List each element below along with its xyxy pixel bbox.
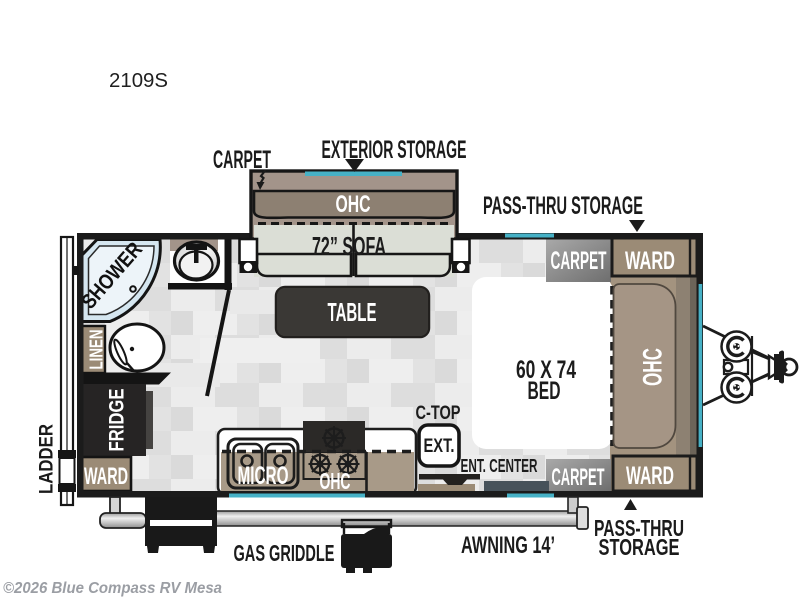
- svg-text:WARD: WARD: [626, 462, 674, 490]
- svg-text:EXTERIOR STORAGE: EXTERIOR STORAGE: [322, 136, 467, 164]
- svg-text:CARPET: CARPET: [213, 146, 271, 174]
- svg-text:2109S: 2109S: [109, 70, 168, 92]
- svg-text:CARPET: CARPET: [551, 247, 607, 275]
- svg-text:STORAGE: STORAGE: [599, 534, 680, 560]
- svg-text:ENT. CENTER: ENT. CENTER: [461, 456, 538, 476]
- svg-text:72” SOFA: 72” SOFA: [312, 231, 386, 261]
- svg-text:OHC: OHC: [336, 191, 371, 218]
- svg-text:©2026 Blue Compass RV Mesa: ©2026 Blue Compass RV Mesa: [3, 580, 222, 597]
- svg-text:MICRO: MICRO: [238, 462, 289, 490]
- svg-text:AWNING 14’: AWNING 14’: [461, 532, 555, 559]
- svg-text:BED: BED: [528, 377, 561, 405]
- svg-text:OHC: OHC: [638, 348, 668, 386]
- svg-text:FRIDGE: FRIDGE: [106, 389, 129, 452]
- svg-text:TABLE: TABLE: [328, 297, 377, 327]
- svg-text:WARD: WARD: [84, 463, 128, 490]
- svg-text:OHC: OHC: [320, 468, 351, 494]
- svg-text:GAS GRIDDLE: GAS GRIDDLE: [234, 540, 335, 566]
- svg-text:LINEN: LINEN: [87, 330, 107, 370]
- svg-text:EXT.: EXT.: [424, 436, 455, 457]
- svg-text:WARD: WARD: [625, 247, 675, 275]
- svg-text:C-TOP: C-TOP: [416, 403, 461, 424]
- svg-text:PASS-THRU STORAGE: PASS-THRU STORAGE: [483, 192, 643, 220]
- svg-text:LADDER: LADDER: [37, 424, 58, 494]
- svg-text:CARPET: CARPET: [552, 464, 605, 491]
